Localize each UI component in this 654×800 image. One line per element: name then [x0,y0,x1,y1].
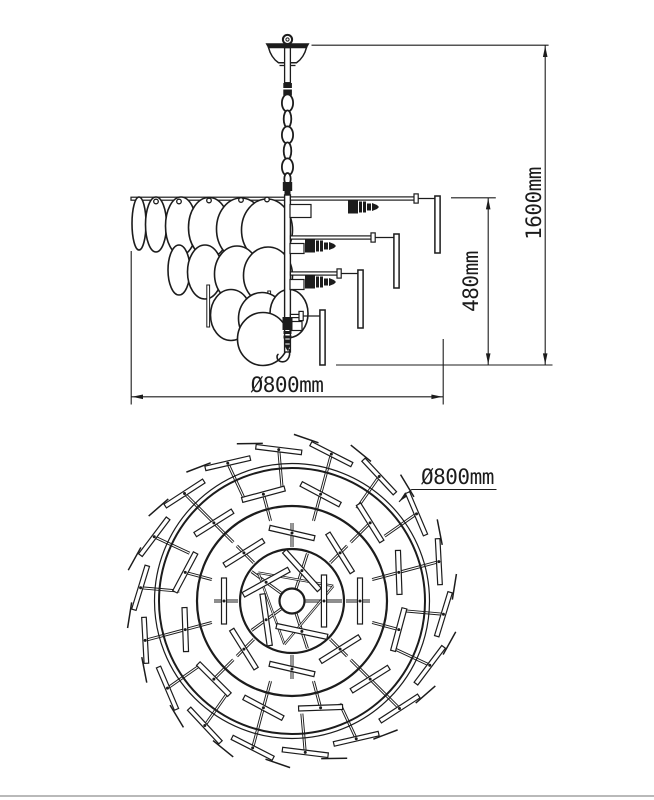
chain-link [284,110,292,127]
bar-node-dot [262,706,265,709]
glass-disc [238,313,289,366]
disc-ring [177,199,182,204]
tier-arm [290,236,371,239]
arrowhead [431,395,442,400]
arrowhead [543,46,548,57]
bar-node-dot [262,493,265,496]
bar-node-dot [339,648,342,651]
bar-node-dot [415,512,418,515]
bar-node-dot [319,706,322,709]
bar-node-dot [291,668,294,671]
outer-dash [149,499,169,516]
bar-node-dot [300,569,303,572]
bar-node-dot [359,600,362,603]
hanger-rod [207,285,210,327]
arm-end-cap [371,233,375,242]
outer-dash [416,686,436,703]
tier-arm [290,272,337,275]
outer-dash [266,759,291,767]
lamp-socket [324,279,328,286]
bottom-socket [284,336,292,339]
side-diameter-label: Ø800mm [251,373,324,397]
glass-disc [168,245,190,295]
disc-ring [239,198,244,203]
lamp-socket [316,277,319,288]
bar-node-dot [251,746,254,749]
edge-disc-bar [435,196,440,253]
bar-node-dot [212,678,215,681]
bar-node-dot [437,560,440,563]
bar-node-dot [265,618,268,621]
canopy-loop [283,35,292,44]
top-plan-view [128,434,457,767]
arm-end-cap [299,311,303,320]
disc-ring [207,198,212,203]
bar-node-dot [442,613,445,616]
stem-bracket [290,244,304,254]
page-footer-rule [0,795,654,797]
bar-node-dot [291,532,294,535]
bar-node-dot [212,521,215,524]
bottom-socket [285,340,291,344]
bar-node-dot [166,687,169,690]
lamp-socket-tip [329,242,336,250]
outer-dash [443,632,456,655]
overall-height-label: 1600mm [522,167,546,240]
radial-spoke-core [385,515,415,536]
lamp-socket [324,243,328,250]
edge-disc-bar [394,234,399,288]
bar-node-dot [184,571,187,574]
bar-node-dot [397,628,400,631]
bottom-socket [284,331,292,334]
lamp-socket [320,277,323,288]
lamp-socket [305,276,315,289]
arrowhead [486,198,491,209]
bar-node-dot [330,453,333,456]
lamp-socket [363,202,366,213]
bar-node-dot [319,493,322,496]
bar-node-dot [139,586,142,589]
lamp-socket [320,241,323,252]
bar-node-dot [378,475,381,478]
bar-node-dot [242,648,245,651]
bar-node-dot [153,535,156,538]
outer-dash [452,574,456,600]
chain-link [282,94,293,111]
hub-circle [280,589,305,614]
bar-node-dot [223,600,226,603]
stem-bracket [290,280,304,290]
arm-end-cap [414,194,418,203]
chain-fitting [283,182,292,191]
bar-node-dot [226,462,229,465]
lamp-socket [305,240,315,253]
bar-node-dot [277,448,280,451]
bar-node-dot [144,639,147,642]
tier-arm [290,197,414,200]
outer-dash [351,445,371,461]
bar-node-dot [398,707,401,710]
disc-ring [154,199,159,204]
bar-node-dot [397,571,400,574]
arrowhead [132,395,143,400]
lamp-socket [316,241,319,252]
bar-node-dot [300,630,303,633]
bar-node-dot [369,521,372,524]
lamp-socket-tip [329,278,336,286]
outer-dash [128,602,132,628]
bar-node-dot [183,492,186,495]
body-height-label: 480mm [459,251,483,312]
outer-dash [128,547,141,570]
edge-disc-bar [320,310,325,365]
technical-drawing-canvas: Ø800mm 480mm 1600mm Ø800mm [0,0,654,800]
bar-node-dot [339,551,342,554]
edge-disc-bar [358,270,363,328]
glass-disc [146,197,167,252]
arrowhead [486,353,491,364]
lamp-socket [348,201,358,214]
bar-node-dot [428,664,431,667]
outer-dash [213,741,233,757]
bar-node-dot [304,751,307,754]
stem-connector [283,83,292,88]
radial-spoke-core [169,666,199,687]
bar-node-dot [355,737,358,740]
chain-link [282,126,293,143]
side-view-elevation [131,35,440,366]
chain-link [284,142,292,159]
disc-ring [265,197,270,202]
bar-node-dot [242,551,245,554]
bar-node-dot [184,628,187,631]
lamp-socket [359,202,362,213]
drawing-sheet: Ø800mm 480mm 1600mm Ø800mm [0,0,654,800]
lamp-socket-tip [372,203,379,211]
bar-node-dot [203,724,206,727]
arm-end-cap [337,269,341,278]
lamp-socket [367,204,371,211]
bar-node-dot [323,600,326,603]
upper-stem [285,48,291,83]
radial-spoke-core [206,694,227,724]
top-diameter-label: Ø800mm [421,465,494,489]
bar-node-dot [265,581,268,584]
outer-dash [294,434,319,442]
glass-disc [132,197,146,250]
stem-bracket [290,205,311,218]
arrowhead [543,353,548,364]
bottom-socket [283,317,293,330]
bar-node-dot [369,678,372,681]
